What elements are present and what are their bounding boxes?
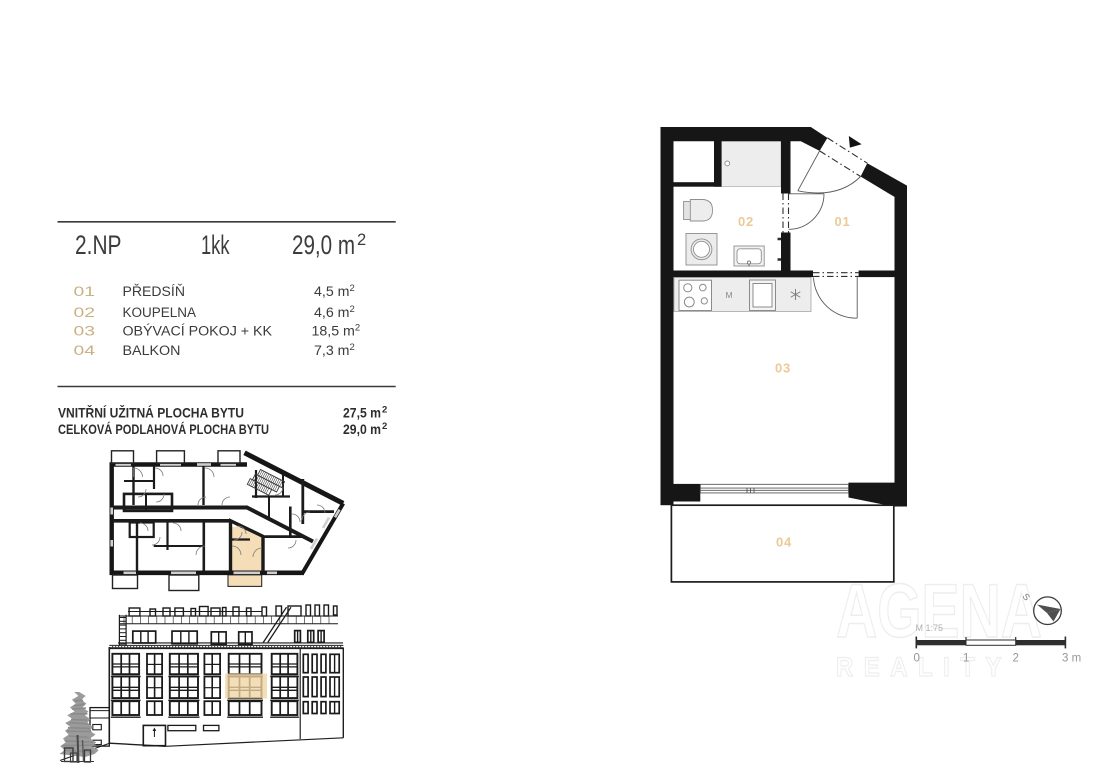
svg-text:02: 02 — [74, 305, 96, 321]
svg-text:02: 02 — [738, 214, 754, 229]
svg-text:04: 04 — [776, 535, 792, 550]
svg-text:2.NP: 2.NP — [75, 230, 122, 260]
svg-text:29,0 m: 29,0 m — [292, 230, 355, 260]
svg-text:7,3 m2: 7,3 m2 — [314, 342, 355, 359]
svg-text:0: 0 — [914, 653, 920, 665]
svg-text:CELKOVÁ PODLAHOVÁ PLOCHA BYTU: CELKOVÁ PODLAHOVÁ PLOCHA BYTU — [58, 422, 269, 437]
svg-text:4,6 m2: 4,6 m2 — [314, 304, 355, 321]
svg-text:2: 2 — [1013, 653, 1019, 665]
svg-text:KOUPELNA: KOUPELNA — [123, 305, 197, 321]
svg-text:REALITY: REALITY — [836, 652, 1012, 682]
svg-text:27,5 m: 27,5 m — [343, 406, 381, 421]
svg-text:01: 01 — [74, 284, 96, 300]
svg-text:M 1:75: M 1:75 — [916, 623, 944, 633]
svg-text:01: 01 — [835, 214, 851, 229]
svg-text:BALKON: BALKON — [123, 343, 181, 359]
svg-text:18,5 m2: 18,5 m2 — [312, 323, 361, 340]
svg-text:04: 04 — [74, 343, 96, 359]
svg-text:29,0 m: 29,0 m — [343, 422, 381, 437]
svg-text:VNITŘNÍ UŽITNÁ PLOCHA BYTU: VNITŘNÍ UŽITNÁ PLOCHA BYTU — [58, 406, 244, 421]
svg-text:1kk: 1kk — [201, 230, 230, 260]
svg-text:03: 03 — [775, 361, 791, 376]
svg-text:1: 1 — [963, 653, 969, 665]
svg-text:2: 2 — [357, 231, 366, 249]
svg-text:03: 03 — [74, 324, 96, 340]
svg-text:3 m: 3 m — [1062, 653, 1081, 665]
svg-text:2: 2 — [382, 405, 387, 416]
svg-text:OBÝVACÍ POKOJ + KK: OBÝVACÍ POKOJ + KK — [123, 323, 273, 340]
svg-text:4,5 m2: 4,5 m2 — [314, 283, 355, 300]
svg-text:M: M — [726, 290, 733, 300]
svg-text:PŘEDSÍŇ: PŘEDSÍŇ — [123, 283, 186, 300]
svg-text:2: 2 — [382, 421, 387, 432]
